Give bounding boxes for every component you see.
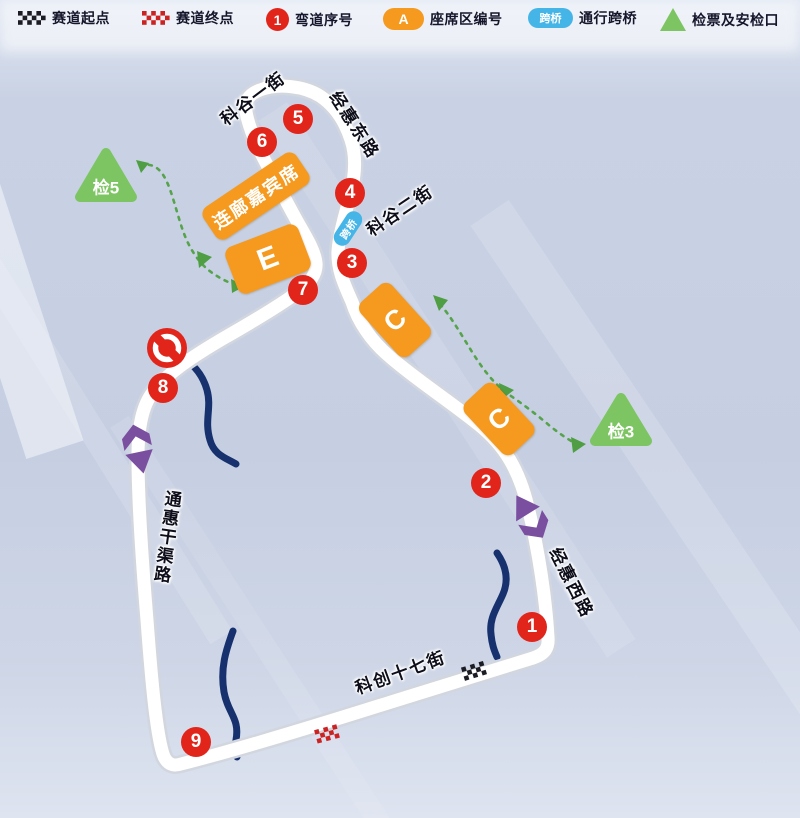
corner-marker-6: 6	[247, 127, 277, 157]
gate-label-5: 检5	[93, 174, 119, 199]
security-gate-icon	[660, 8, 686, 31]
legend-item-finish: 赛道终点	[142, 8, 234, 28]
track-map-svg	[0, 0, 800, 818]
seat-box-label: C	[377, 302, 412, 338]
event-track-map: 连廊嘉宾席 E C C 跨桥 检5 检3 1 2 3 4 5 6 7 8 9 科…	[0, 0, 800, 818]
corner-marker-2: 2	[471, 468, 501, 498]
corner-marker-5: 5	[283, 104, 313, 134]
corner-number-icon: 1	[266, 8, 289, 31]
legend-label: 检票及安检口	[692, 10, 779, 30]
gate-label-3: 检3	[608, 418, 634, 443]
corner-marker-9: 9	[181, 727, 211, 757]
seat-box-label: E	[253, 240, 284, 279]
legend-label: 赛道起点	[52, 8, 110, 28]
legend-label: 通行跨桥	[579, 8, 637, 28]
legend: 赛道起点 赛道终点 1 弯道序号 A 座席区编号 跨桥 通行跨桥	[0, 0, 800, 46]
legend-label: 座席区编号	[430, 9, 503, 29]
corner-marker-1: 1	[517, 612, 547, 642]
legend-label: 赛道终点	[176, 8, 234, 28]
legend-item-seat: A 座席区编号	[383, 8, 503, 30]
finish-checker-icon	[142, 11, 170, 26]
legend-item-start: 赛道起点	[18, 8, 110, 28]
corner-marker-3: 3	[337, 248, 367, 278]
corner-marker-7: 7	[288, 275, 318, 305]
legend-item-bridge: 跨桥 通行跨桥	[528, 8, 637, 28]
start-checker-icon	[18, 11, 46, 26]
bridge-icon: 跨桥	[528, 8, 573, 28]
legend-item-gate: 检票及安检口	[660, 8, 779, 31]
legend-label: 弯道序号	[295, 10, 353, 30]
seat-area-icon: A	[383, 8, 424, 30]
no-entry-sign	[147, 328, 187, 368]
seat-box-label: C	[481, 401, 516, 437]
corner-marker-4: 4	[335, 178, 365, 208]
corner-marker-8: 8	[148, 373, 178, 403]
legend-item-corner: 1 弯道序号	[266, 8, 353, 31]
